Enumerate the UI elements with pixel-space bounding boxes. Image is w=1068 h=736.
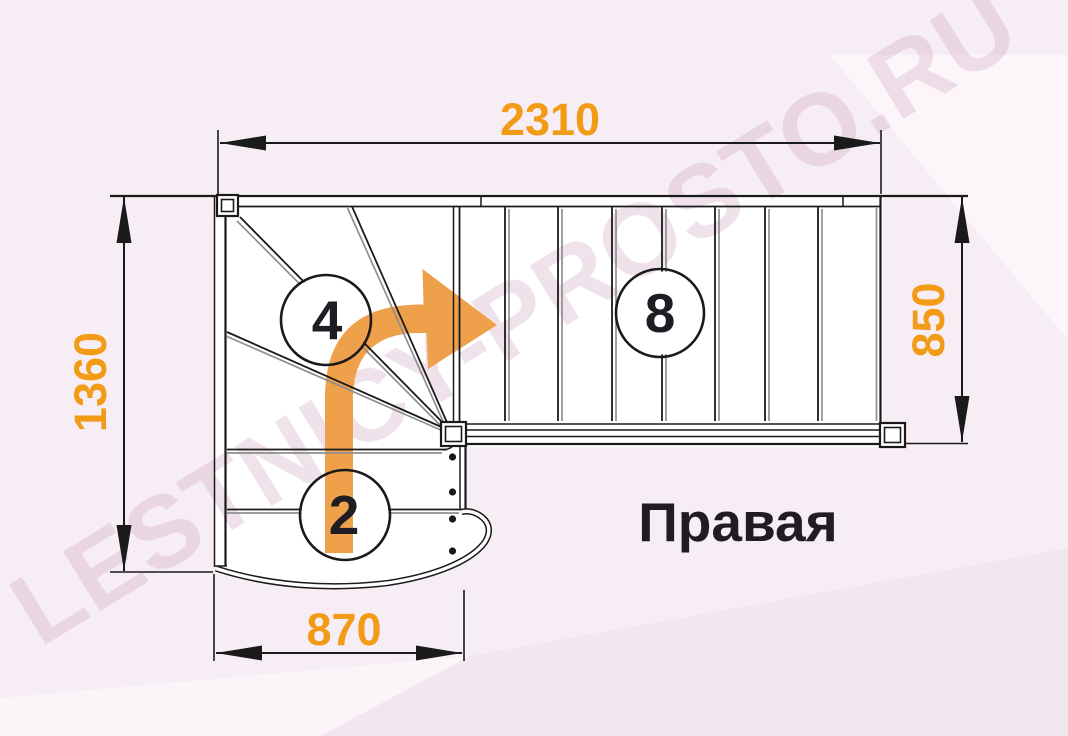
baluster-dot [449,488,456,495]
winder-step-count: 4 [312,289,343,351]
staircase-plan-svg: LESTNICY-PROSTO.RU [0,0,1068,736]
newel-post-right [880,423,905,447]
staircase-plan-canvas: LESTNICY-PROSTO.RU [0,0,1068,736]
lower-flight-step-count: 2 [329,484,360,546]
baluster-dot [449,547,456,554]
newel-post-center [441,422,466,446]
upper-flight-step-count: 8 [645,282,676,344]
newel-post-top-left [217,195,238,216]
orientation-title: Правая [638,491,837,553]
dimension-left-value: 1360 [65,332,116,432]
dimension-right-value: 850 [903,282,954,357]
baluster-dot [449,515,456,522]
dimension-bottom-value: 870 [306,604,381,655]
baluster-dot [449,453,456,460]
dimension-top-value: 2310 [500,94,600,145]
dimension-right: 850 [903,197,970,444]
